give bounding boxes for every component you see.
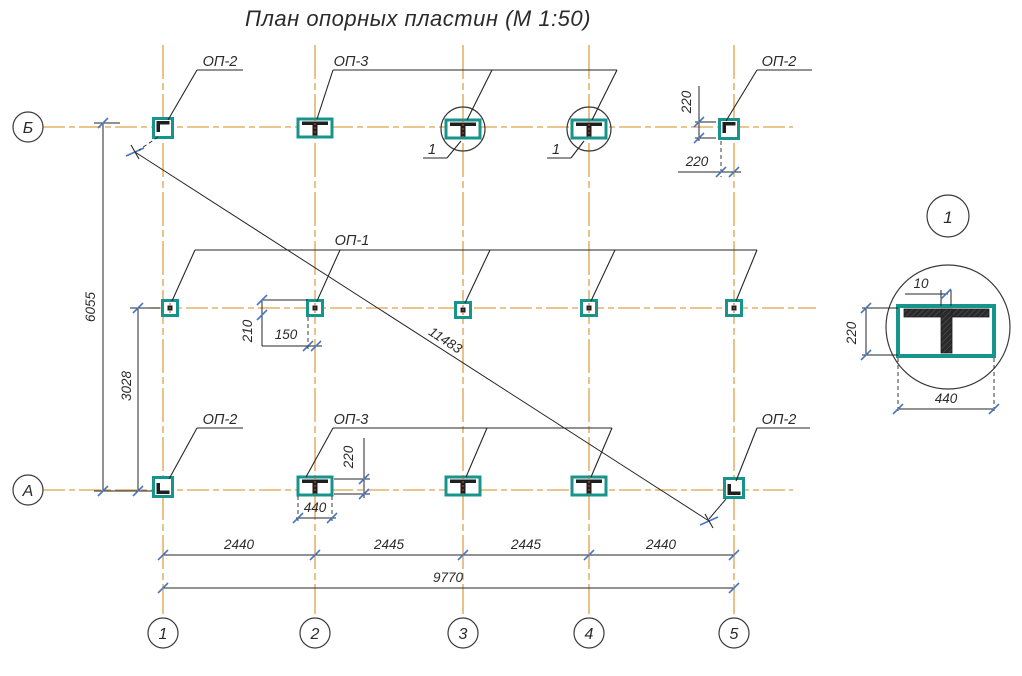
- detail-ref-bubble: 1: [943, 208, 952, 227]
- dim-tr-horizontal: 220: [685, 154, 709, 169]
- label-op3-bot: ОП-3: [334, 412, 369, 428]
- detail-stem-hatch: [941, 309, 952, 353]
- dim-span-4-5: 2440: [645, 537, 677, 552]
- plate-mark-labels: ОП-2 ОП-3 ОП-2 ОП-1 ОП-2 ОП-3 ОП-2: [168, 54, 812, 481]
- dim-bot-vertical: 220: [341, 445, 356, 469]
- axis-col-1: 1: [159, 626, 168, 643]
- dim-mid-horizontal: 150: [275, 327, 298, 342]
- cad-plan-view: План опорных пластин (М 1:50) 1 2 3 4 5 …: [0, 0, 1022, 676]
- dim-mid-vertical: 210: [240, 319, 255, 343]
- axis-row-b: Б: [23, 120, 33, 137]
- callout-1-label: 1: [552, 142, 560, 158]
- drawing-title: План опорных пластин (М 1:50): [245, 6, 591, 31]
- label-op2-bot-left: ОП-2: [203, 412, 238, 428]
- dim-lower-height: 3028: [119, 370, 134, 401]
- dim-span-2-3: 2445: [373, 537, 405, 552]
- dim-span-3-4: 2445: [510, 537, 542, 552]
- axis-row-a: А: [22, 483, 34, 500]
- label-op1-mid: ОП-1: [335, 233, 370, 249]
- dim-span-1-2: 2440: [223, 537, 255, 552]
- axis-col-4: 4: [585, 626, 594, 643]
- callout-1-label: 1: [428, 142, 436, 158]
- dim-detail-width: 440: [935, 391, 958, 406]
- dim-detail-height: 220: [844, 321, 859, 345]
- axis-col-3: 3: [459, 626, 468, 643]
- detail-view-1: 1 10 220 440: [844, 195, 1010, 414]
- axis-col-2: 2: [310, 626, 320, 643]
- dimensions: 6055 3028 2440 2445 2445 2440 9770 220 2…: [83, 86, 741, 593]
- axis-col-5: 5: [730, 626, 739, 643]
- dim-total-width: 9770: [433, 570, 464, 585]
- dim-detail-stem: 10: [913, 276, 929, 291]
- dim-total-height: 6055: [83, 291, 98, 322]
- label-op2-bot-right: ОП-2: [762, 412, 797, 428]
- label-op2-top-left: ОП-2: [203, 54, 238, 70]
- label-op3-top: ОП-3: [334, 54, 369, 70]
- label-op2-top-right: ОП-2: [762, 54, 797, 70]
- dim-tr-vertical: 220: [679, 90, 694, 114]
- dim-bot-width: 440: [304, 500, 327, 515]
- plan-drawing: План опорных пластин (М 1:50) 1 2 3 4 5 …: [0, 0, 1022, 676]
